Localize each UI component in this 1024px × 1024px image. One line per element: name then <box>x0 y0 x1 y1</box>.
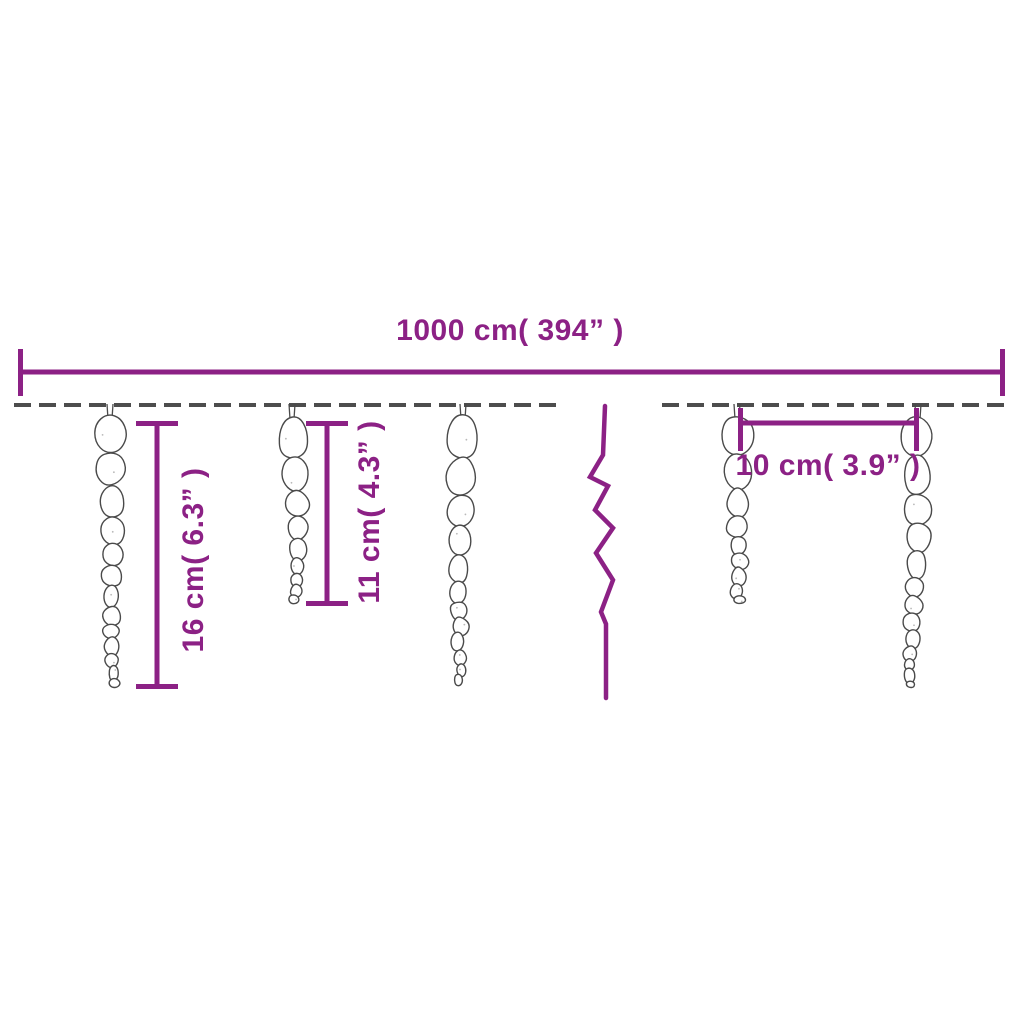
icicle-texture-dot <box>113 662 115 664</box>
icicle-segment <box>731 537 746 555</box>
icicle-texture-dot <box>739 559 741 561</box>
icicle-long <box>95 404 126 688</box>
icicle-segment <box>291 558 304 575</box>
icicle-segment <box>279 417 307 458</box>
icicle-segment <box>100 486 123 517</box>
icicle-texture-dot <box>285 438 287 440</box>
icicle-texture-dot <box>465 439 467 441</box>
icicle-segment <box>454 650 466 666</box>
icicle-segment <box>103 606 121 625</box>
icicle-texture-dot <box>459 654 461 656</box>
icicle-segment <box>734 596 746 604</box>
total-length-dimension <box>18 349 1005 396</box>
icicle-segment <box>904 494 931 525</box>
icicle-lights-figure <box>0 0 1024 1024</box>
icicle-segment <box>726 516 747 537</box>
icicle-texture-dot <box>110 594 112 596</box>
icicle-texture-dot <box>463 624 465 626</box>
icicle-segment <box>101 565 121 586</box>
diagram-canvas: 1000 cm( 394” ) 16 cm( 6.3” ) 11 cm( 4.3… <box>0 0 1024 1024</box>
icicle-segment <box>449 555 468 583</box>
icicle-spacing-label: 10 cm( 3.9” ) <box>736 449 921 483</box>
icicle-segment <box>906 681 914 687</box>
icicle-segment <box>449 525 471 555</box>
icicle-segment <box>905 595 923 614</box>
icicle-texture-dot <box>114 669 116 671</box>
icicle-texture-dot <box>456 607 458 609</box>
long-icicle-length-label: 16 cm( 6.3” ) <box>177 468 211 653</box>
icicle-spacing-dimension <box>738 408 919 451</box>
icicle-texture-dot <box>741 601 743 603</box>
icicle-short <box>279 404 309 604</box>
icicle-texture-dot <box>465 514 467 516</box>
icicle-texture-dot <box>913 503 915 505</box>
icicle-segment <box>96 453 125 485</box>
icicle-texture-dot <box>102 434 104 436</box>
icicle-segment <box>903 613 920 631</box>
icicle-segment <box>446 457 475 495</box>
icicle-segment <box>455 674 463 685</box>
icicle-segment <box>451 632 464 651</box>
icicle-segment <box>104 585 118 607</box>
icicle-texture-dot <box>735 577 737 579</box>
long-icicle-dimension <box>136 421 178 689</box>
icicle-segment <box>101 517 125 545</box>
icicle-segment <box>907 523 931 553</box>
icicle-texture-dot <box>291 482 293 484</box>
icicle-long <box>446 404 477 686</box>
icicle-segment <box>732 567 746 586</box>
icicle-segment <box>447 495 474 526</box>
icicle-texture-dot <box>112 531 114 533</box>
icicle-texture-dot <box>913 624 915 626</box>
short-icicle-dimension <box>306 421 348 606</box>
short-icicle-length-label: 11 cm( 4.3” ) <box>353 420 387 603</box>
icicle-segment <box>286 490 310 516</box>
icicle-segment <box>727 488 748 517</box>
icicle-segment <box>289 595 299 604</box>
icicle-segment <box>447 415 477 458</box>
icicle-segment <box>95 415 126 452</box>
icicle-segment <box>109 679 120 688</box>
icicle-texture-dot <box>738 588 740 590</box>
length-break-mark <box>590 406 613 698</box>
total-length-label: 1000 cm( 394” ) <box>396 314 624 348</box>
icicle-texture-dot <box>113 471 115 473</box>
icicle-segment <box>103 543 123 565</box>
icicle-texture-dot <box>911 653 913 655</box>
icicle-texture-dot <box>293 565 295 567</box>
icicle-segment <box>282 457 308 491</box>
icicle-texture-dot <box>459 669 461 671</box>
icicle-texture-dot <box>456 533 458 535</box>
icicle-segment <box>288 516 308 540</box>
icicle-segment <box>905 578 923 598</box>
icicle-short <box>722 404 754 603</box>
icicle-texture-dot <box>910 608 912 610</box>
icicle-segment <box>907 551 925 579</box>
icicle-texture-dot <box>295 599 297 601</box>
icicle-segment <box>450 581 466 603</box>
